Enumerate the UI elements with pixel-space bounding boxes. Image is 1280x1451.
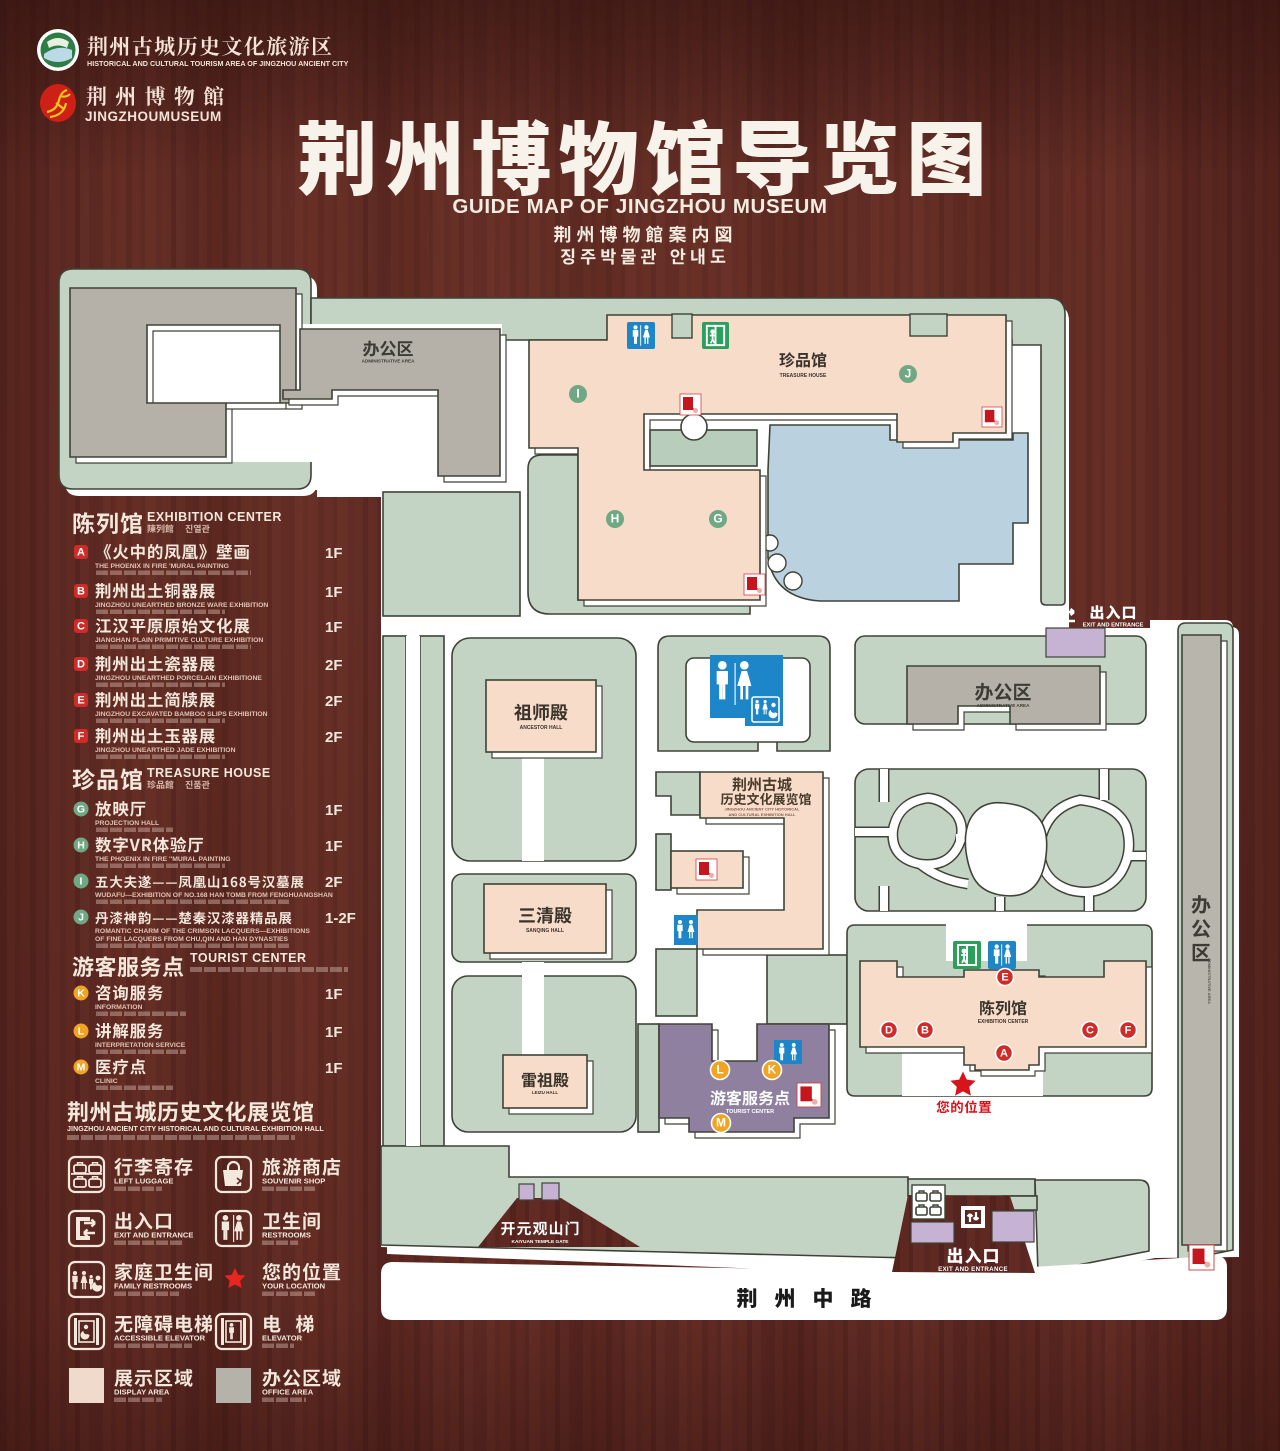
svg-text:KAIYUAN TEMPLE GATE: KAIYUAN TEMPLE GATE (512, 1239, 570, 1245)
svg-text:THE PHOENIX IN FIRE ''MURAL PA: THE PHOENIX IN FIRE ''MURAL PAINTING (95, 856, 231, 863)
svg-text:C: C (77, 620, 85, 632)
svg-text:CLINIC: CLINIC (95, 1078, 118, 1085)
svg-text:TOURIST CENTER: TOURIST CENTER (726, 1109, 774, 1115)
svg-text:ADMINISTRATIVE AREA: ADMINISTRATIVE AREA (362, 359, 416, 364)
svg-text:ELEVATOR: ELEVATOR (262, 1334, 303, 1343)
svg-text:OFFICE AREA: OFFICE AREA (262, 1388, 314, 1397)
svg-text:JINGZHOU ANCIENT CITY HISTORIC: JINGZHOU ANCIENT CITY HISTORICAL AND CUL… (67, 1124, 324, 1133)
svg-text:E: E (1001, 971, 1008, 983)
svg-text:JINGZHOU UNEARTHED JADE EXHIBI: JINGZHOU UNEARTHED JADE EXHIBITION (95, 747, 236, 754)
svg-text:K: K (77, 987, 85, 999)
svg-text:EXHIBITION CENTER: EXHIBITION CENTER (978, 1019, 1029, 1025)
svg-text:EXHIBITION CENTER: EXHIBITION CENTER (147, 510, 282, 524)
svg-text:LEFT LUGGAGE: LEFT LUGGAGE (114, 1177, 173, 1186)
svg-text:SANQING HALL: SANQING HALL (526, 928, 564, 934)
svg-text:ADMINISTRATIVE AREA: ADMINISTRATIVE AREA (977, 703, 1031, 708)
svg-text:F: F (1125, 1024, 1132, 1036)
svg-text:JINGZHOU UNEARTHED BRONZE WARE: JINGZHOU UNEARTHED BRONZE WARE EXHIBITIO… (95, 602, 268, 609)
svg-text:D: D (77, 658, 85, 670)
svg-text:M: M (77, 1061, 86, 1073)
svg-text:GUIDE MAP OF JINGZHOU MUSEUM: GUIDE MAP OF JINGZHOU MUSEUM (452, 195, 827, 218)
svg-text:WUDAFU—EXHIBITION OF NO.168 HA: WUDAFU—EXHIBITION OF NO.168 HAN TOMB FRO… (95, 892, 333, 899)
svg-text:ROMANTIC CHARM OF THE CRIMSON: ROMANTIC CHARM OF THE CRIMSON LACQUERS—E… (95, 928, 310, 935)
svg-text:YOUR LOCATION: YOUR LOCATION (262, 1282, 325, 1291)
svg-text:THE PHOENIX IN FIRE 'MURAL PAI: THE PHOENIX IN FIRE 'MURAL PAINTING (95, 563, 229, 570)
svg-text:2F: 2F (325, 657, 343, 674)
svg-text:1F: 1F (325, 1024, 343, 1041)
svg-text:JINGZHOUMUSEUM: JINGZHOUMUSEUM (85, 109, 222, 124)
svg-text:LEIZU HALL: LEIZU HALL (532, 1090, 558, 1095)
svg-text:TREASURE HOUSE: TREASURE HOUSE (147, 766, 271, 780)
svg-text:B: B (77, 585, 85, 597)
svg-text:AND CULTURAL EXHIBITION HALL: AND CULTURAL EXHIBITION HALL (729, 812, 797, 817)
svg-text:ANCESTOR HALL: ANCESTOR HALL (520, 725, 563, 731)
svg-text:1F: 1F (325, 545, 343, 562)
svg-text:RESTROOMS: RESTROOMS (262, 1231, 311, 1240)
svg-text:G: G (77, 803, 85, 815)
svg-text:INTERPRETATION SERVICE: INTERPRETATION SERVICE (95, 1042, 186, 1049)
svg-text:SOUVENIR SHOP: SOUVENIR SHOP (262, 1177, 325, 1186)
svg-text:B: B (921, 1024, 929, 1036)
svg-text:HISTORICAL AND CULTURAL TOURIS: HISTORICAL AND CULTURAL TOURISM AREA OF … (87, 59, 349, 68)
svg-text:1F: 1F (325, 802, 343, 819)
svg-text:ACCESSIBLE ELEVATOR: ACCESSIBLE ELEVATOR (114, 1334, 206, 1343)
svg-text:JINGZHOU UNEARTHED PORCELAIN E: JINGZHOU UNEARTHED PORCELAIN EXHIBITIONE (95, 675, 262, 682)
svg-text:EXIT AND ENTRANCE: EXIT AND ENTRANCE (938, 1266, 1008, 1273)
svg-text:C: C (1086, 1024, 1094, 1036)
svg-text:JINGZHOU ANCIENT CITY HISTORIC: JINGZHOU ANCIENT CITY HISTORICAL (724, 807, 800, 812)
svg-text:I: I (80, 875, 83, 887)
svg-text:L: L (716, 1063, 723, 1077)
svg-text:E: E (77, 694, 84, 706)
svg-text:JIANGHAN PLAIN PRIMITIVE CULTU: JIANGHAN PLAIN PRIMITIVE CULTURE EXHIBIT… (95, 637, 263, 644)
svg-text:L: L (78, 1025, 85, 1037)
svg-text:H: H (77, 839, 85, 851)
svg-text:EXIT AND ENTRANCE: EXIT AND ENTRANCE (114, 1231, 193, 1240)
svg-text:1F: 1F (325, 986, 343, 1003)
svg-text:I: I (576, 387, 579, 401)
svg-text:H: H (611, 512, 620, 526)
svg-text:G: G (713, 512, 722, 526)
svg-text:1F: 1F (325, 838, 343, 855)
svg-text:INFORMATION: INFORMATION (95, 1004, 143, 1011)
svg-text:1F: 1F (325, 619, 343, 636)
svg-text:OF FINE LACQUERS FROM CHU,QIN: OF FINE LACQUERS FROM CHU,QIN AND HAN DY… (95, 936, 289, 943)
svg-text:J: J (905, 367, 912, 381)
svg-text:K: K (768, 1063, 777, 1077)
svg-text:PROJECTION HALL: PROJECTION HALL (95, 820, 159, 827)
svg-text:F: F (78, 730, 85, 742)
svg-text:M: M (716, 1116, 726, 1130)
svg-text:2F: 2F (325, 729, 343, 746)
svg-text:A: A (1000, 1047, 1008, 1059)
svg-text:2F: 2F (325, 874, 343, 891)
svg-text:FAMILY RESTROOMS: FAMILY RESTROOMS (114, 1282, 192, 1291)
svg-text:2F: 2F (325, 693, 343, 710)
svg-text:D: D (885, 1024, 893, 1036)
svg-text:DISPLAY AREA: DISPLAY AREA (114, 1388, 170, 1397)
svg-text:ADMINISTRATIVE AREA: ADMINISTRATIVE AREA (1207, 958, 1212, 1004)
svg-text:JINGZHOU EXCAVATED BAMBOO SLIP: JINGZHOU EXCAVATED BAMBOO SLIPS EXHIBITI… (95, 711, 268, 718)
svg-text:1F: 1F (325, 584, 343, 601)
svg-text:A: A (77, 546, 85, 558)
svg-text:J: J (78, 911, 84, 923)
svg-text:1-2F: 1-2F (325, 910, 356, 927)
svg-text:TOURIST CENTER: TOURIST CENTER (190, 951, 307, 965)
svg-text:TREASURE HOUSE: TREASURE HOUSE (780, 373, 827, 379)
svg-text:1F: 1F (325, 1060, 343, 1077)
